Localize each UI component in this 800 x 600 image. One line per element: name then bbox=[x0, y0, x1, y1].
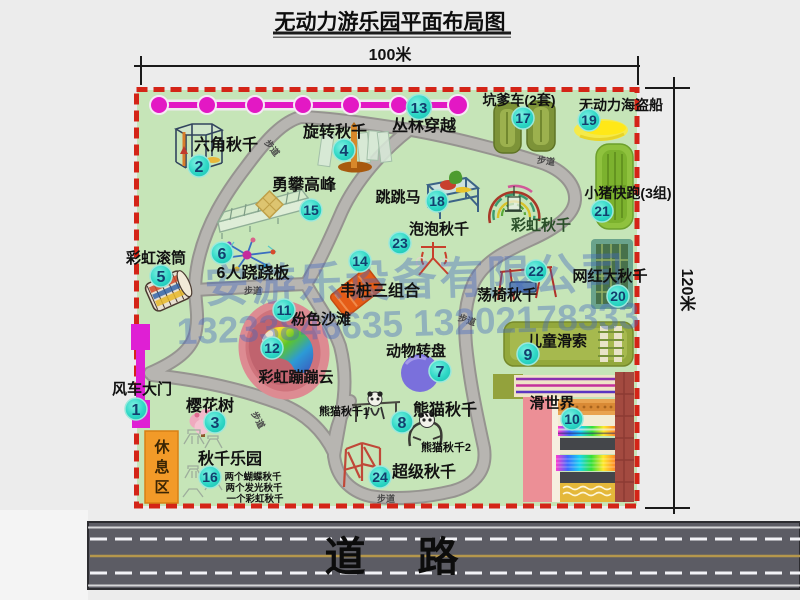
svg-text:100米: 100米 bbox=[369, 45, 413, 64]
svg-text:熊猫秋千: 熊猫秋千 bbox=[413, 400, 477, 419]
svg-text:4: 4 bbox=[340, 143, 349, 160]
svg-text:5: 5 bbox=[157, 269, 166, 286]
svg-text:11: 11 bbox=[277, 302, 292, 318]
svg-text:勇攀高峰: 勇攀高峰 bbox=[272, 175, 337, 194]
svg-text:15: 15 bbox=[303, 202, 319, 218]
svg-text:韦桩三组合: 韦桩三组合 bbox=[340, 281, 421, 300]
svg-text:超级秋千: 超级秋千 bbox=[391, 462, 456, 481]
svg-text:熊猫秋千2: 熊猫秋千2 bbox=[421, 440, 471, 454]
svg-text:9: 9 bbox=[524, 347, 533, 364]
svg-text:动物转盘: 动物转盘 bbox=[386, 342, 446, 360]
svg-text:彩虹蹦蹦云: 彩虹蹦蹦云 bbox=[257, 368, 333, 386]
svg-text:23: 23 bbox=[392, 235, 408, 251]
svg-text:网红大秋千: 网红大秋千 bbox=[572, 267, 647, 285]
svg-text:风车大门: 风车大门 bbox=[112, 380, 172, 398]
svg-text:无动力游乐园平面布局图: 无动力游乐园平面布局图 bbox=[275, 10, 506, 34]
svg-text:粉色沙滩: 粉色沙滩 bbox=[291, 310, 351, 328]
svg-text:息: 息 bbox=[154, 458, 169, 476]
svg-text:泡泡秋千: 泡泡秋千 bbox=[409, 220, 469, 238]
svg-text:16: 16 bbox=[202, 469, 218, 485]
svg-text:17: 17 bbox=[515, 110, 531, 126]
svg-text:步道: 步道 bbox=[377, 493, 395, 504]
svg-text:6: 6 bbox=[218, 246, 227, 263]
svg-text:秋千乐园: 秋千乐园 bbox=[198, 449, 262, 468]
svg-text:20: 20 bbox=[610, 288, 626, 304]
svg-text:荡椅秋千: 荡椅秋千 bbox=[477, 286, 537, 304]
svg-text:13: 13 bbox=[411, 100, 428, 117]
svg-text:21: 21 bbox=[594, 203, 610, 219]
svg-text:22: 22 bbox=[528, 263, 544, 279]
svg-text:区: 区 bbox=[154, 479, 169, 496]
svg-text:跳跳马: 跳跳马 bbox=[375, 188, 420, 206]
svg-text:旋转秋千: 旋转秋千 bbox=[302, 122, 367, 141]
svg-text:小猪快跑(3组): 小猪快跑(3组) bbox=[584, 185, 671, 201]
svg-text:路: 路 bbox=[418, 534, 460, 580]
svg-text:两个发光秋千: 两个发光秋千 bbox=[225, 482, 283, 494]
svg-text:120米: 120米 bbox=[678, 269, 697, 313]
svg-text:10: 10 bbox=[564, 411, 580, 427]
svg-text:3: 3 bbox=[211, 415, 220, 432]
svg-text:6人跷跷板: 6人跷跷板 bbox=[217, 263, 291, 282]
svg-text:18: 18 bbox=[429, 193, 445, 209]
svg-text:熊猫秋千1: 熊猫秋千1 bbox=[319, 404, 369, 418]
svg-text:7: 7 bbox=[436, 364, 445, 381]
svg-text:1: 1 bbox=[132, 402, 141, 419]
svg-text:休: 休 bbox=[153, 438, 170, 456]
svg-text:道: 道 bbox=[325, 534, 366, 580]
svg-text:六角秋千: 六角秋千 bbox=[194, 135, 258, 154]
svg-text:8: 8 bbox=[398, 415, 407, 432]
svg-text:2: 2 bbox=[195, 159, 204, 176]
svg-text:彩虹秋千: 彩虹秋千 bbox=[510, 216, 571, 234]
svg-text:24: 24 bbox=[372, 469, 388, 485]
svg-text:两个蝴蝶秋千: 两个蝴蝶秋千 bbox=[224, 471, 282, 483]
svg-text:12: 12 bbox=[264, 340, 280, 356]
svg-text:坑爹车(2套): 坑爹车(2套) bbox=[482, 92, 555, 108]
svg-text:彩虹滚筒: 彩虹滚筒 bbox=[125, 249, 186, 267]
svg-text:19: 19 bbox=[581, 112, 597, 128]
svg-text:14: 14 bbox=[352, 253, 368, 269]
svg-text:一个彩虹秋千: 一个彩虹秋千 bbox=[226, 493, 284, 505]
